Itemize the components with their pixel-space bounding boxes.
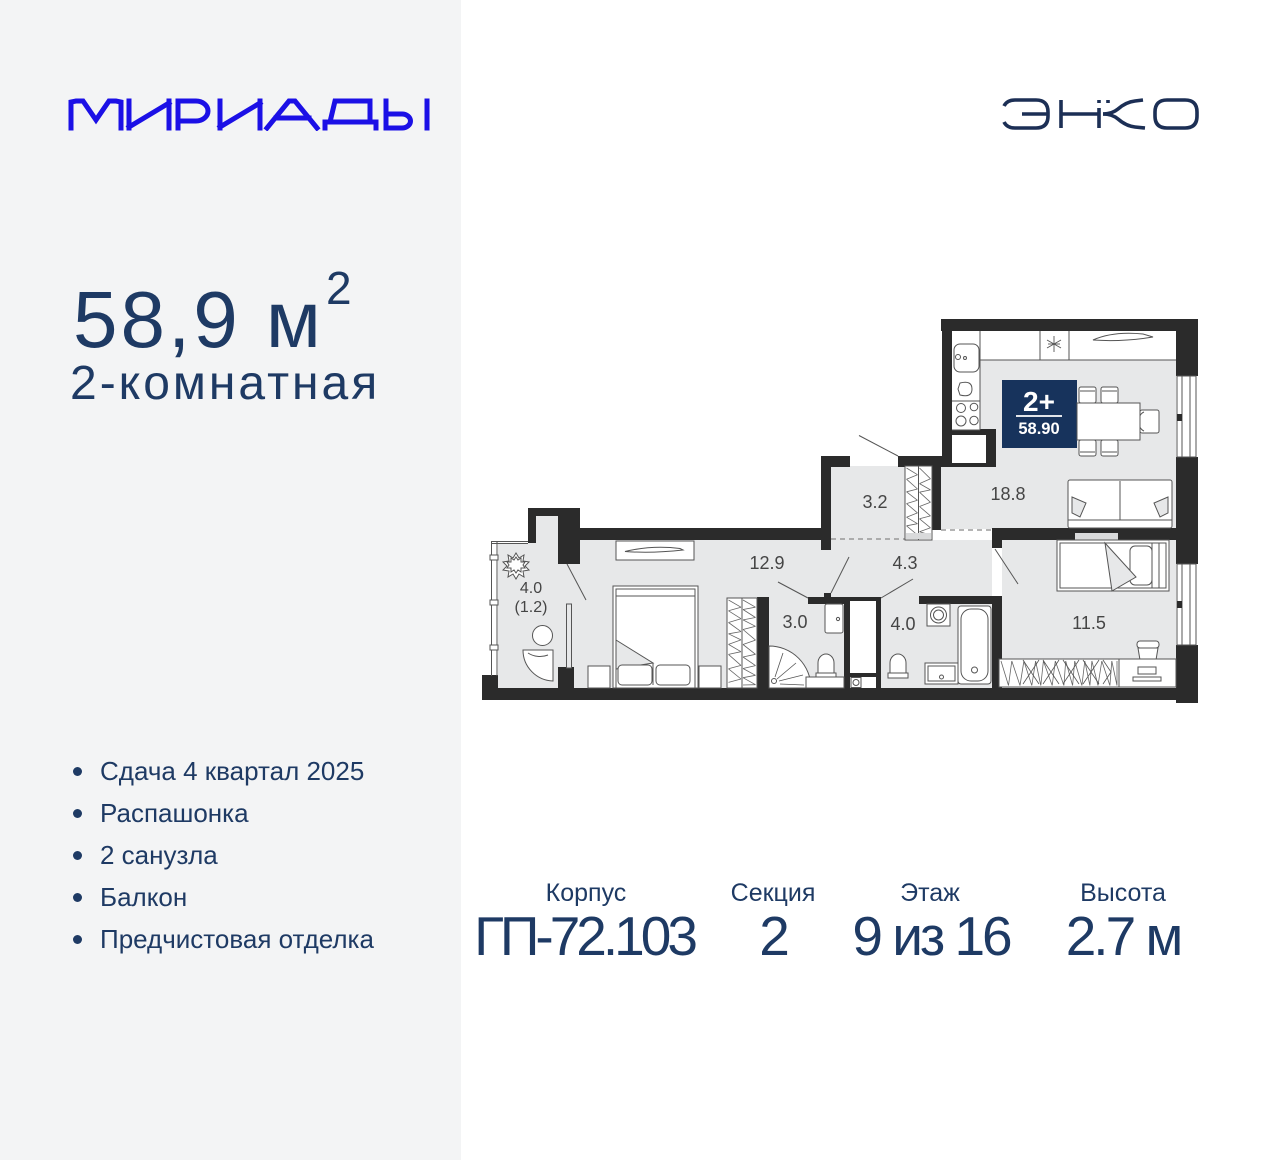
svg-text:11.5: 11.5 — [1072, 613, 1106, 633]
svg-text:4.0: 4.0 — [520, 580, 542, 597]
svg-text:3.2: 3.2 — [862, 492, 887, 512]
svg-text:4.0: 4.0 — [890, 614, 915, 634]
svg-text:3.0: 3.0 — [782, 612, 807, 632]
svg-text:58.90: 58.90 — [1018, 420, 1059, 438]
svg-text:2+: 2+ — [1023, 386, 1055, 417]
svg-text:4.3: 4.3 — [892, 553, 917, 573]
svg-text:(1.2): (1.2) — [515, 599, 548, 616]
svg-text:18.8: 18.8 — [990, 484, 1025, 504]
svg-text:12.9: 12.9 — [749, 553, 784, 573]
